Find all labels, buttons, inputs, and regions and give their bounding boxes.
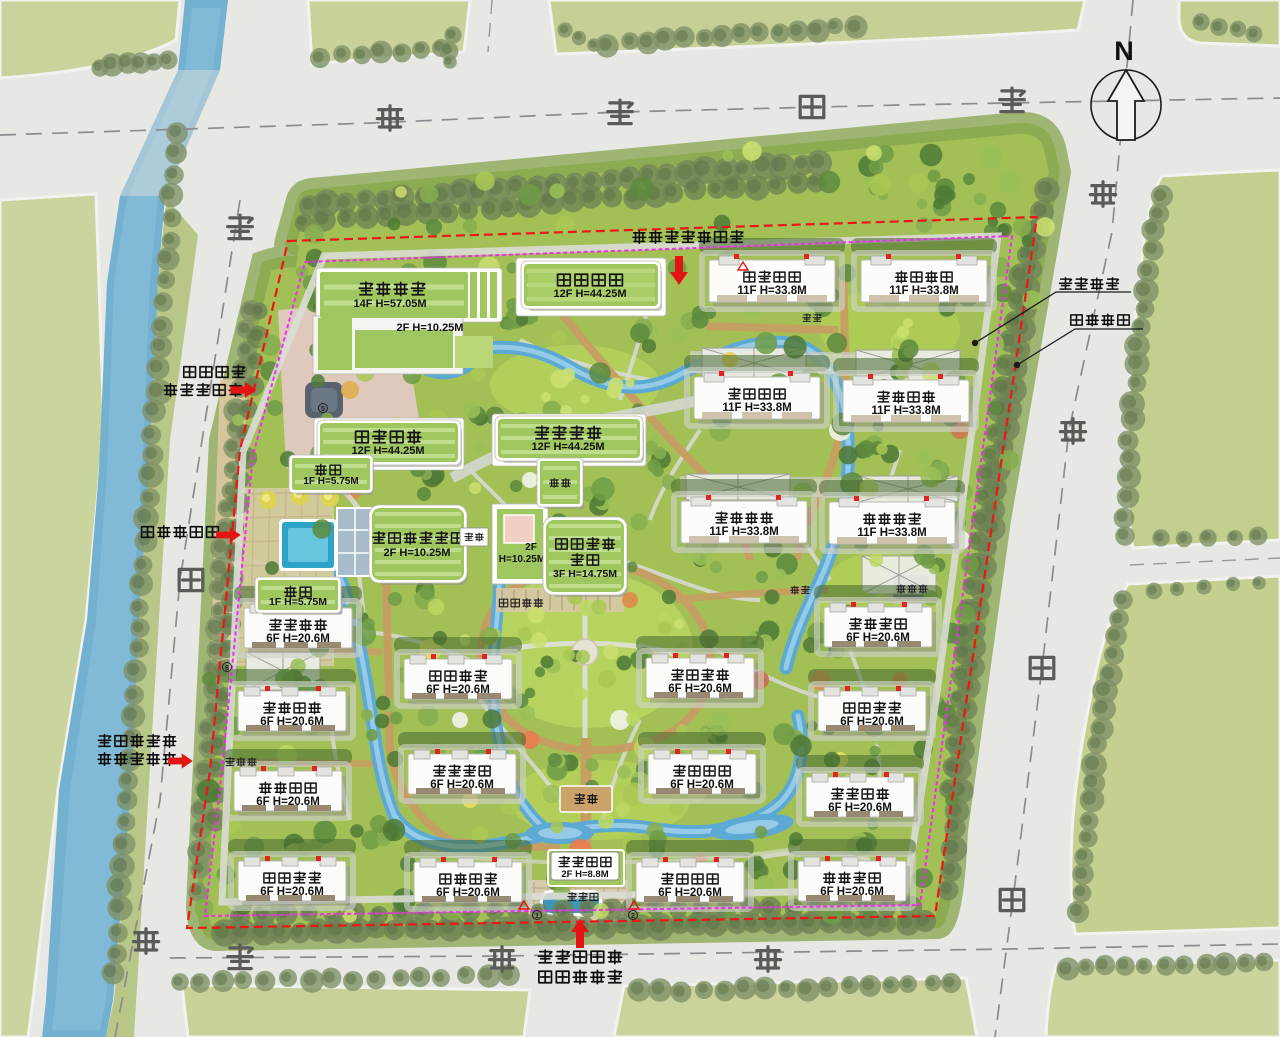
svg-text:2F H=10.25M: 2F H=10.25M [397, 322, 464, 334]
svg-text:6F H=20.6M: 6F H=20.6M [430, 779, 494, 791]
svg-text:1F H=5.75M: 1F H=5.75M [269, 596, 327, 608]
svg-text:11F H=33.8M: 11F H=33.8M [871, 405, 940, 417]
svg-text:6: 6 [225, 665, 229, 672]
svg-text:N: N [1114, 36, 1134, 66]
svg-text:6F H=20.6M: 6F H=20.6M [820, 886, 884, 898]
svg-text:6F H=20.6M: 6F H=20.6M [266, 633, 330, 645]
svg-text:6F H=20.6M: 6F H=20.6M [260, 886, 324, 898]
svg-text:6F H=20.6M: 6F H=20.6M [256, 796, 320, 808]
svg-text:2F H=8.8M: 2F H=8.8M [561, 869, 608, 880]
svg-text:14F H=57.05M: 14F H=57.05M [353, 298, 426, 310]
svg-text:1F H=5.75M: 1F H=5.75M [303, 476, 358, 487]
svg-text:3F H=14.75M: 3F H=14.75M [553, 568, 617, 580]
svg-text:H=10.25M: H=10.25M [499, 554, 545, 565]
svg-text:6F H=20.6M: 6F H=20.6M [426, 684, 490, 696]
svg-text:11F H=33.8M: 11F H=33.8M [737, 285, 806, 297]
svg-text:11F H=33.8M: 11F H=33.8M [857, 527, 926, 539]
svg-text:6F H=20.6M: 6F H=20.6M [846, 632, 910, 644]
svg-text:6F H=20.6M: 6F H=20.6M [260, 716, 324, 728]
svg-text:5: 5 [321, 406, 325, 413]
svg-text:6F H=20.6M: 6F H=20.6M [840, 716, 904, 728]
svg-text:12F H=44.25M: 12F H=44.25M [553, 288, 626, 300]
svg-text:6F H=20.6M: 6F H=20.6M [668, 683, 732, 695]
svg-text:11F H=33.8M: 11F H=33.8M [889, 285, 958, 297]
svg-text:2F H=10.25M: 2F H=10.25M [384, 547, 451, 559]
svg-text:1: 1 [535, 913, 539, 920]
svg-text:11F H=33.8M: 11F H=33.8M [709, 526, 778, 538]
svg-text:6F H=20.6M: 6F H=20.6M [658, 887, 722, 899]
svg-text:6F H=20.6M: 6F H=20.6M [436, 887, 500, 899]
svg-text:2: 2 [631, 913, 635, 920]
svg-text:12F H=44.25M: 12F H=44.25M [531, 441, 604, 453]
svg-text:6F H=20.6M: 6F H=20.6M [670, 779, 734, 791]
svg-text:2F: 2F [525, 542, 537, 553]
svg-text:6F H=20.6M: 6F H=20.6M [828, 802, 892, 814]
svg-text:11F H=33.8M: 11F H=33.8M [722, 402, 791, 414]
